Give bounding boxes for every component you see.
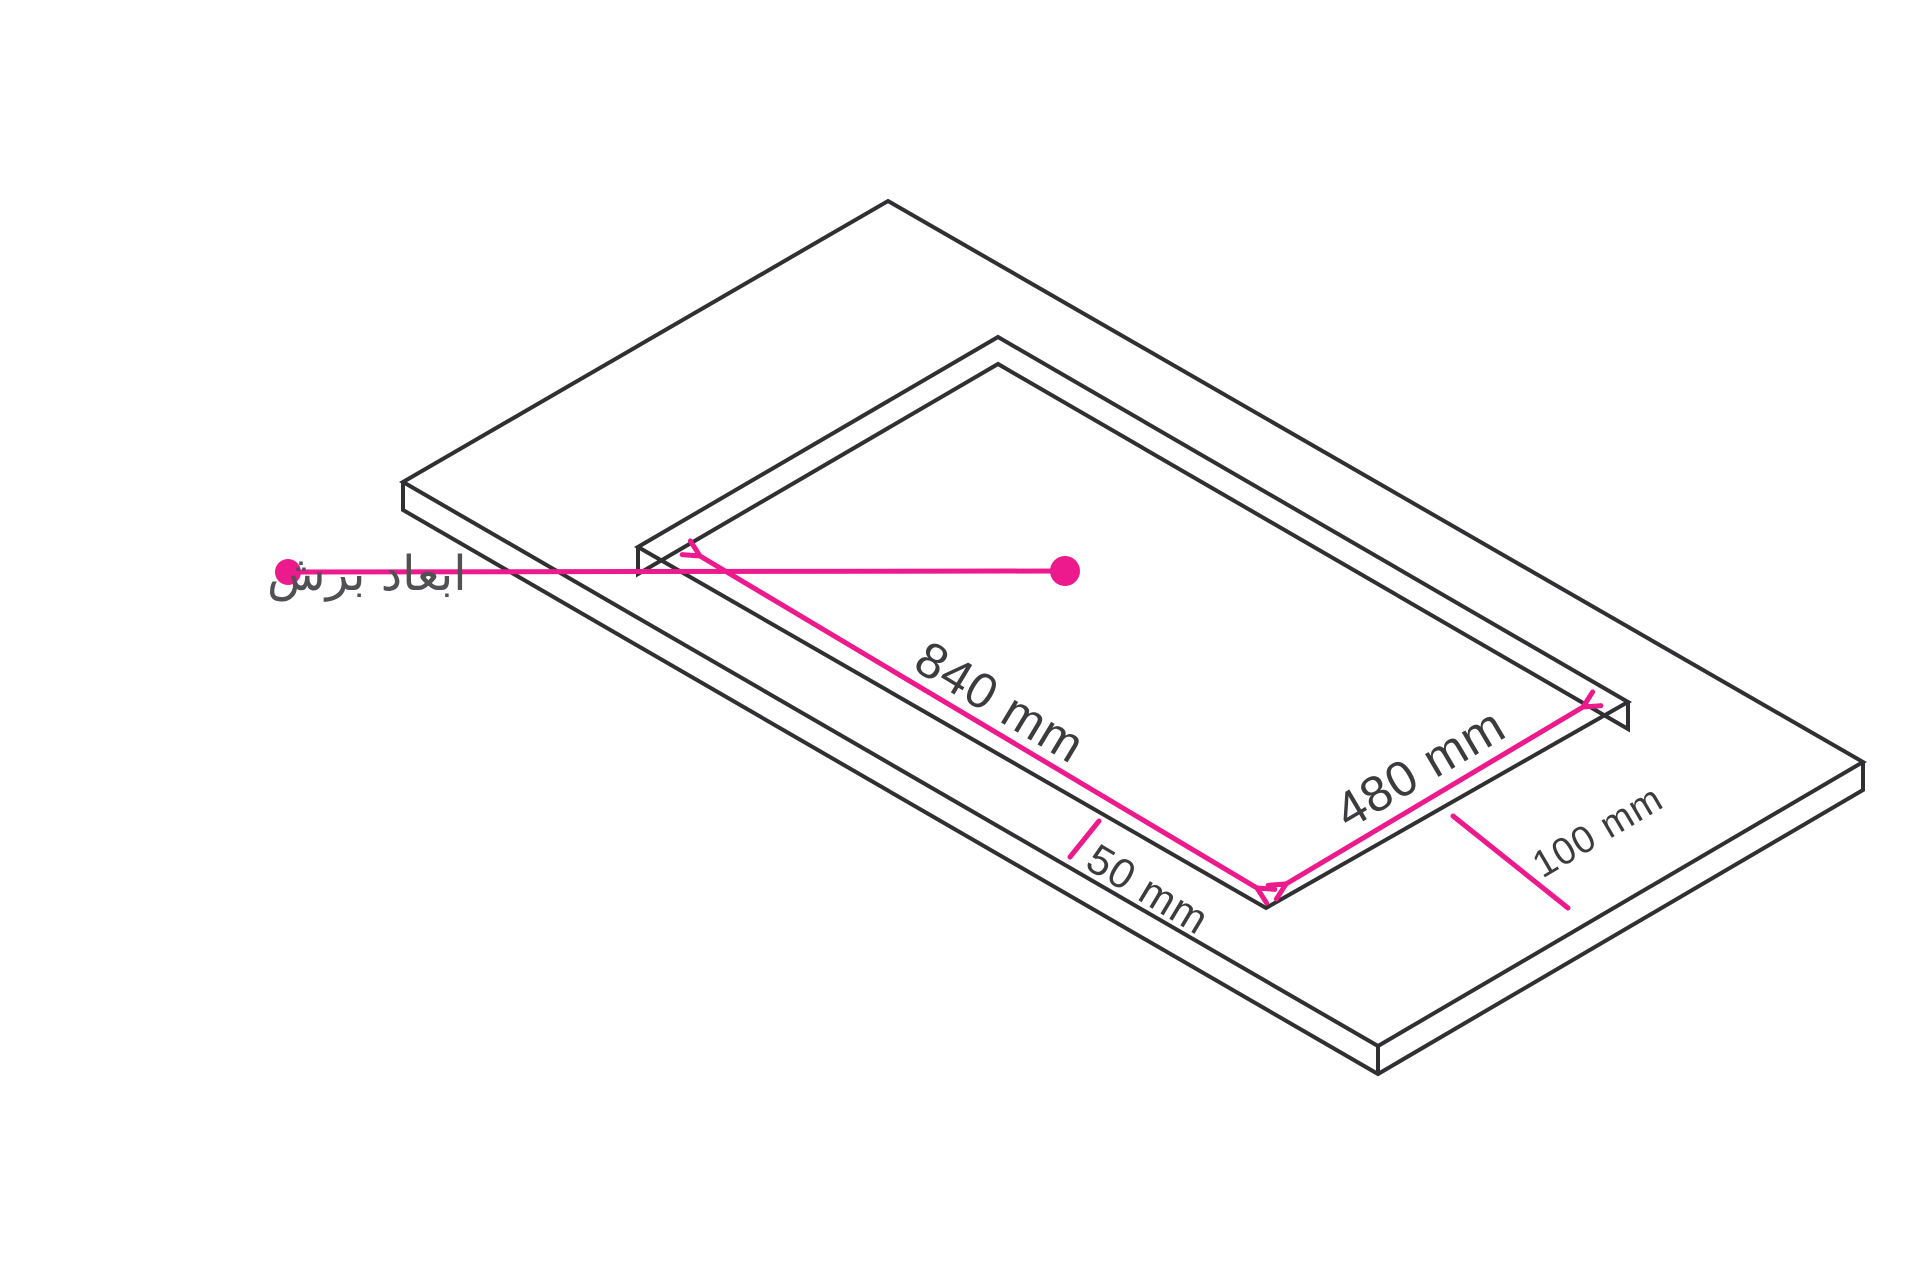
label-cutout-length: 840 mm [906,630,1095,774]
dimension-line-840 [700,556,1257,888]
dimension-annotations [275,556,1583,908]
label-side-clearance: 100 mm [1526,778,1671,887]
countertop-panel [403,201,1863,1074]
leader-dot-right [1050,556,1080,586]
cutout-depth-edge [638,364,1628,729]
label-cutout-width: 480 mm [1325,697,1514,840]
cutout-dimensions-diagram: 840 mm 480 mm 50 mm 100 mm ابعاد برش [0,0,1920,1280]
cutout-top-edge [638,337,1628,908]
isometric-diagram-canvas: 840 mm 480 mm 50 mm 100 mm ابعاد برش [0,0,1920,1280]
caption-cut-dimensions: ابعاد برش [267,546,467,602]
cutout-opening [638,337,1628,908]
